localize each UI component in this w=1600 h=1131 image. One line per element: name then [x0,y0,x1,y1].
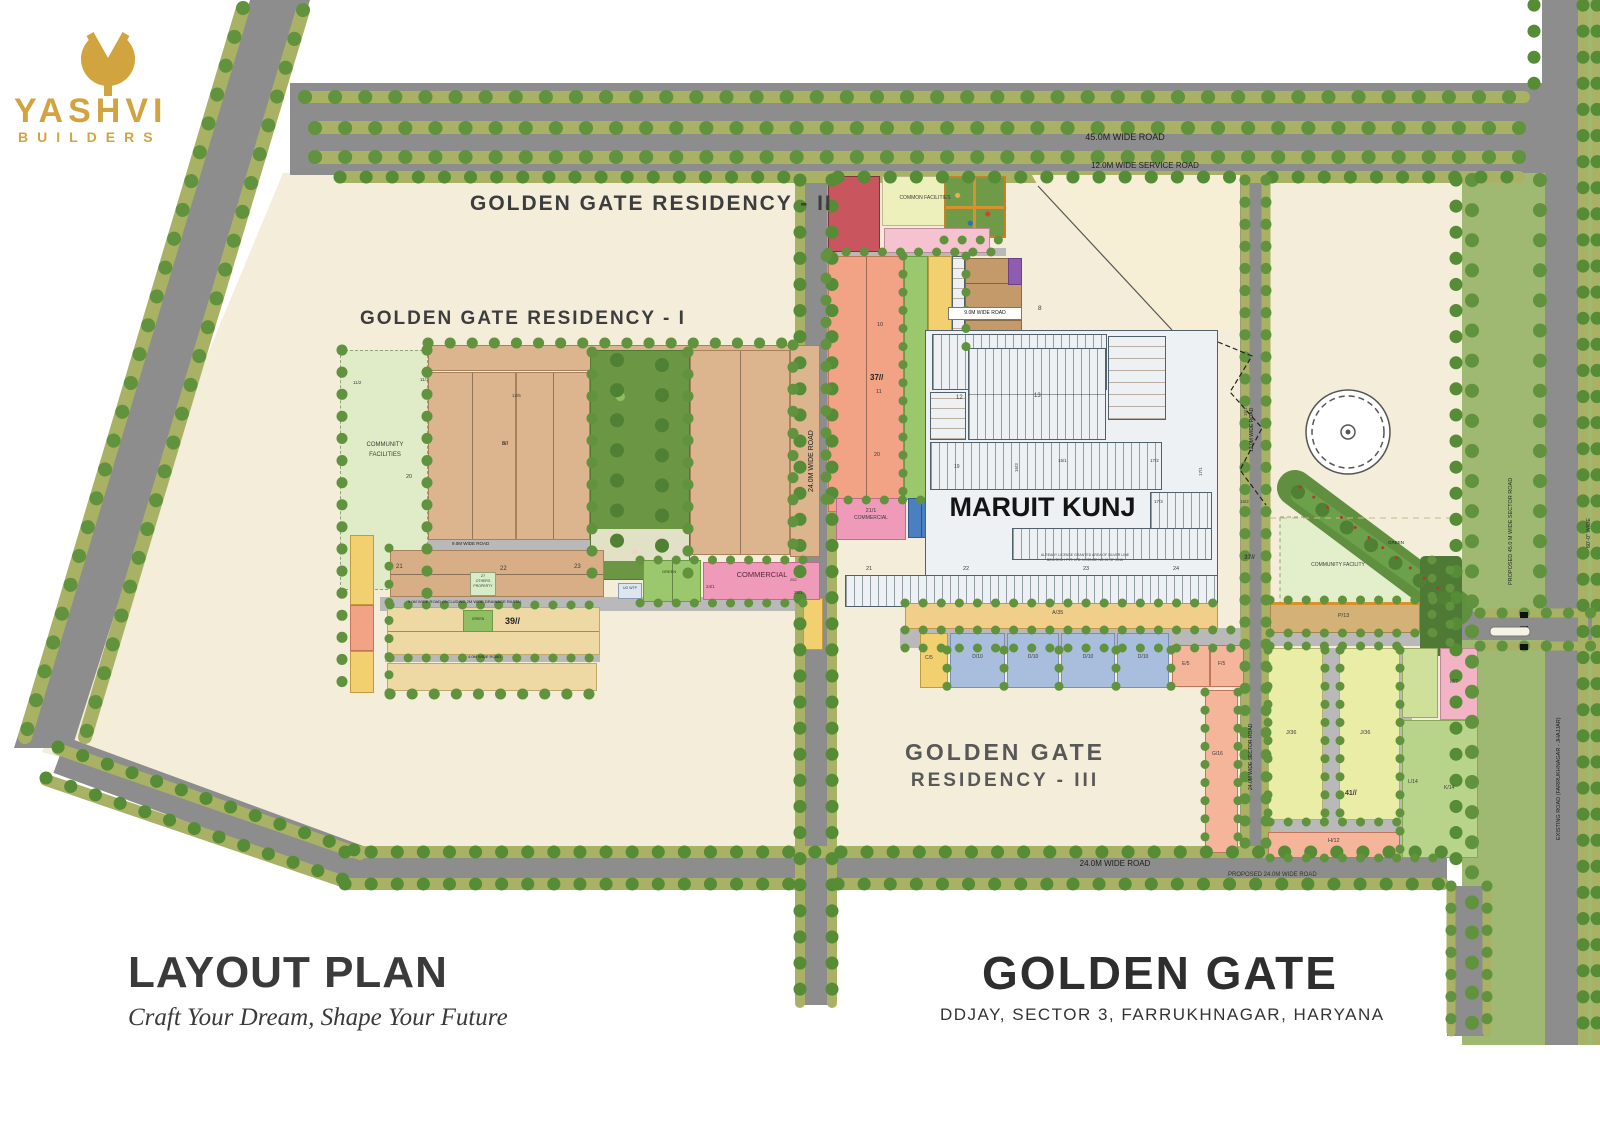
block-red-plots [828,176,880,252]
label-res2-37: 37// [870,374,883,383]
res1-band-83-129 [390,550,604,597]
label-res2-11: 11 [876,389,882,395]
title-maruit-kunj: MARUIT KUNJ [930,492,1155,522]
road-label-9m-drain: 9.0M WIDE ROAD (INCLUDING 2M WIDE DRAINA… [408,600,521,604]
label-27-property: PROPERTY [470,585,496,589]
label-11-2: 11/2 [353,380,361,385]
block-39-south-row [387,663,597,691]
block-k14-l14 [1402,720,1478,858]
label-39-green: GREEN [464,618,492,622]
label-27: 27 [470,574,496,578]
footer-title: LAYOUT PLAN [128,948,448,997]
label-11-1: 11/1 [420,377,428,382]
label-maruit-12: 12 [956,395,963,402]
road-label-45m: 45.0M WIDE ROAD [1050,132,1200,142]
label-d10-3: D/10 [1061,655,1115,661]
label-res1-21: 21 [396,564,403,571]
label-res1-23: 23 [574,564,581,571]
block-e5 [1172,645,1210,687]
res1-yellow-column [350,535,374,605]
label-39: 39// [505,616,520,626]
label-maruit-8: 8 [1038,305,1042,312]
road-label-60ft: 60'-0" WIDE [1586,518,1592,548]
road-label-12m-east: 12.0M WIDE ROAD [1250,408,1256,452]
title-residency-2: GOLDEN GATE RESIDENCY - II [470,192,820,216]
label-res2-20: 20 [874,452,880,458]
res1-grid-mid [516,372,590,540]
road-label-24m-sector: 24.0M WIDE SECTOR ROAD [1249,724,1255,790]
label-j36-west: J/36 [1286,730,1296,736]
label-d10-4: D/10 [1117,655,1169,661]
label-g16: G/16 [1212,752,1223,758]
layout-plan-poster: YASHVI BUILDERS GOLDEN GATE RESIDENCY - … [0,0,1600,1131]
label-d10-2: D/10 [1007,655,1059,661]
label-commercial-21-1a: 21/1 [840,508,902,514]
block-g16 [1205,690,1238,853]
block-m7 [1440,648,1478,720]
label-east-37: 37// [1244,554,1255,561]
road-label-proposed-45m: PROPOSED 45.0 M WIDE SECTOR ROAD [1508,478,1514,585]
label-f5: F/5 [1218,662,1225,668]
label-band-21: 21 [866,566,872,572]
road-label-24m-bottom: 24.0M WIDE ROAD [1040,860,1190,869]
footer-location: DDJAY, SECTOR 3, FARRUKHNAGAR, HARYANA [940,1005,1380,1024]
label-l14: L/14 [1408,780,1418,786]
label-green-east: GREEN [1388,540,1404,545]
label-maruit-15-2: 15/2 [1240,499,1249,504]
label-p13: P/13 [1338,613,1349,619]
label-j36-east: J/36 [1360,730,1370,736]
label-25-1: 25/1 [794,590,803,595]
road-label-12m-service: 12.0M WIDE SERVICE ROAD [1070,162,1220,171]
block-salmon-37 [828,256,904,512]
label-band-24: 24 [1173,566,1179,572]
label-maruit-15-1: 15/1 [1058,458,1067,463]
yashvi-logo-icon [48,26,168,106]
label-k14: K/14 [1444,786,1454,792]
block-h12 [1268,832,1400,858]
label-c5: C/5 [925,656,933,662]
res1-green-plots [643,560,701,602]
label-252: 252 [790,578,797,582]
road-label-9m-res1: 9.0M WIDE ROAD [452,541,489,546]
label-community-facilities-2: FACILITIES [352,452,418,459]
label-12-5: 12/5 [512,393,521,398]
label-a35: A/35 [1052,610,1063,616]
maruit-strip-5 [930,442,1162,490]
label-res2-10: 10 [877,322,883,328]
label-d10-1: D/10 [950,655,1005,661]
title-residency-3-line2: RESIDENCY - III [890,770,1120,791]
label-commercial: COMMERCIAL [710,571,814,579]
block-purple-plot [1008,258,1022,285]
maruit-strip-6 [1150,492,1212,530]
label-8-slash: 8// [502,441,508,447]
label-commercial-21-1b: COMMERCIAL [840,516,902,522]
res1-right-yellow [803,598,823,650]
road-label-9m-res2: 9.0M WIDE ROAD [948,307,1022,320]
footer-tagline: Craft Your Dream, Shape Your Future [128,1004,508,1032]
label-maruit-17-3: 17/3 [1154,499,1163,504]
label-res1-22: 22 [500,566,507,573]
label-ug-wtp: UG WTP [618,587,642,591]
road-label-4m: 4.0M WIDE ROAD [468,655,501,659]
res1-central-park [590,350,690,580]
label-band-23: 23 [1083,566,1089,572]
road-label-existing: EXISTING ROAD (FARRUKHNAGAR - JHAJJAR) [1556,717,1562,840]
label-common-facilities: COMMON FACILITIES [884,196,966,202]
road-label-24m-mid: 24.0M WIDE ROAD [808,430,816,492]
title-residency-3-line1: GOLDEN GATE [890,740,1120,766]
res1-grid-left [428,372,516,540]
label-maruit-16-3: 16/3 [1014,463,1019,472]
res1-salmon-column [350,605,374,651]
block-39 [387,607,600,655]
label-east-15-1: 15/1 [1243,407,1248,416]
label-cf-20: 20 [406,474,412,480]
label-h12: H/12 [1328,838,1340,844]
label-band-22: 22 [963,566,969,572]
footer-project-name: GOLDEN GATE [940,948,1380,1000]
maruit-license-note-2: BELLTECH PVT. LTD. LICENSE NO.91 OF 2015 [1030,559,1140,563]
block-f5 [1210,645,1244,687]
label-community-facilities-1: COMMUNITY [352,442,418,449]
block-pink-row [884,228,990,253]
road-label-24m-proposed: PROPOSED 24.0M WIDE ROAD [1228,872,1317,879]
label-maruit-17-2: 17/2 [1150,458,1159,463]
block-small-green [1402,648,1438,718]
res1-yellow-column-2 [350,651,374,693]
label-maruit-17-1: 17/1 [1198,467,1203,476]
brand-subtitle: BUILDERS [18,130,160,146]
title-residency-1: GOLDEN GATE RESIDENCY - I [360,308,660,329]
label-maruit-13: 13 [1034,393,1041,400]
label-41: 41// [1345,790,1357,798]
res1-grid-right [690,350,790,555]
maruit-strip-4 [1108,336,1166,420]
label-24-1: 24/1 [706,584,715,589]
label-maruit-19: 19 [954,465,960,471]
label-community-facility-east: COMMUNITY FACILITY [1288,563,1388,569]
label-m7: M/7 [1450,680,1458,686]
label-e5: E/5 [1182,662,1190,668]
label-green-res1: GREEN [662,570,676,574]
